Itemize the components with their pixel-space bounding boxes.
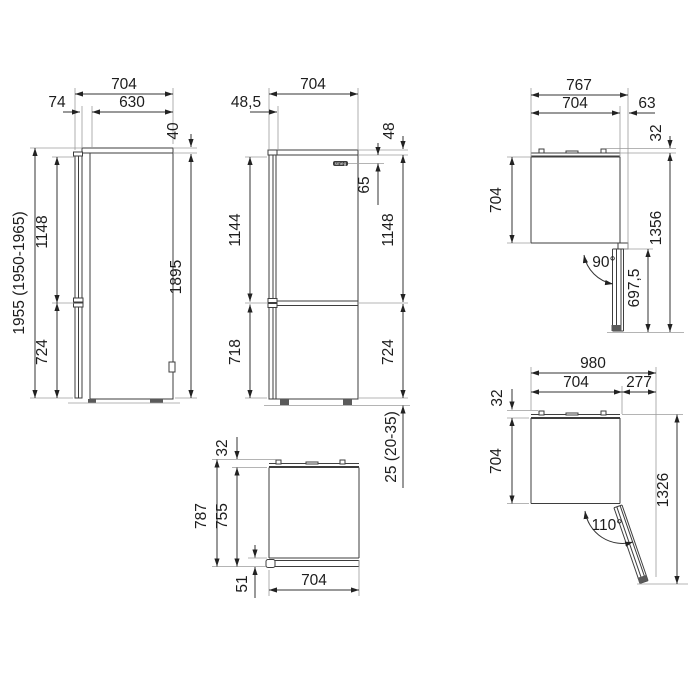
front-width-label: 704 — [300, 76, 326, 93]
topclosed-depth-body-label: 755 — [214, 503, 231, 529]
front-upper-door-left-label: 1144 — [227, 213, 244, 247]
front-top-band-label: 48 — [381, 122, 398, 139]
front-right-foot — [343, 399, 352, 405]
side-mid-hinge — [74, 298, 84, 302]
top-view-door-90: 767 704 63 32 704 1356 697,5 90° — [488, 77, 684, 333]
top90-width-body-label: 704 — [562, 95, 588, 112]
top110-rear-spacer-label: 32 — [489, 389, 506, 406]
front-lower-door-left-label: 718 — [227, 339, 244, 365]
rear-spacer — [276, 460, 281, 464]
top90-hinge-overhang-label: 63 — [638, 95, 655, 112]
rear-spacer — [601, 411, 606, 415]
side-cabinet — [90, 153, 173, 399]
top110-width-total-label: 980 — [580, 355, 606, 372]
side-body-height-label: 1895 — [168, 260, 185, 294]
dimension-drawing-canvas: 704 630 74 40 1955 (1950-1965) 1148 724 … — [0, 0, 700, 700]
side-view: 704 630 74 40 1955 (1950-1965) 1148 724 … — [11, 76, 197, 403]
top110-depth-body-label: 704 — [488, 448, 505, 474]
side-upper-door-label: 1148 — [34, 215, 51, 248]
smeg-logo-text: smeg — [335, 161, 347, 166]
refrigerator-dimension-diagram: 704 630 74 40 1955 (1950-1965) 1148 724 … — [0, 0, 700, 700]
top110-width-body-label: 704 — [563, 374, 589, 391]
top90-width-total-label: 767 — [566, 77, 592, 94]
topclosed-rear-spacer-label: 32 — [214, 439, 231, 456]
front-lower-door-right-label: 724 — [380, 339, 397, 365]
side-height-total-label: 1955 (1950-1965) — [11, 211, 28, 334]
side-body-depth-label: 630 — [119, 94, 145, 111]
top90-door-length-label: 697,5 — [626, 269, 643, 308]
topclosed-depth-total-label: 787 — [193, 503, 210, 529]
closed-door — [266, 560, 359, 568]
front-feet-height-label: 25 (20-35) — [383, 411, 400, 483]
front-lid — [269, 150, 358, 155]
front-doors — [269, 155, 358, 399]
side-depth-total-label: 704 — [111, 76, 137, 93]
front-left-foot — [280, 399, 289, 405]
front-hinge-offset-label: 48,5 — [231, 94, 261, 111]
side-door-gap-label: 74 — [48, 94, 66, 111]
side-rear-foot — [150, 399, 163, 403]
rear-spacer — [601, 149, 606, 153]
top-view-closed: 32 787 755 51 704 — [193, 437, 359, 598]
front-upper-door-right-label: 1148 — [380, 213, 397, 246]
rear-spacer — [340, 460, 345, 464]
front-logo-offset-label: 65 — [356, 176, 373, 193]
top90-depth-body-label: 704 — [488, 187, 505, 213]
topclosed-door-clearance-label: 51 — [234, 575, 251, 592]
side-lid-height-label: 40 — [165, 122, 182, 140]
side-foot — [88, 399, 96, 403]
side-lower-door-label: 724 — [34, 339, 51, 365]
door-hinge-tab — [266, 560, 275, 568]
topclosed-width-label: 704 — [301, 572, 327, 589]
front-view: smeg 704 48,5 48 65 1144 1148 718 — [227, 76, 410, 488]
side-rear-bracket — [169, 362, 175, 372]
top90-angle-label: 90° — [592, 254, 615, 271]
rear-spacer — [539, 411, 544, 415]
top90-rear-spacer-label: 32 — [648, 124, 665, 141]
front-mid-hinge — [268, 299, 277, 303]
top-view-door-110: 980 704 277 32 704 1326 110° — [488, 355, 688, 584]
side-lid — [82, 148, 173, 153]
top110-depth-open-label: 1326 — [655, 473, 672, 507]
top110-angle-label: 110° — [592, 517, 623, 534]
front-top-hinge — [268, 150, 277, 155]
side-top-hinge — [74, 152, 83, 156]
top90-depth-open-label: 1356 — [648, 211, 665, 245]
top110-door-swing-label: 277 — [626, 374, 652, 391]
rear-spacer — [539, 149, 544, 153]
door-hinge-housing — [618, 243, 628, 249]
